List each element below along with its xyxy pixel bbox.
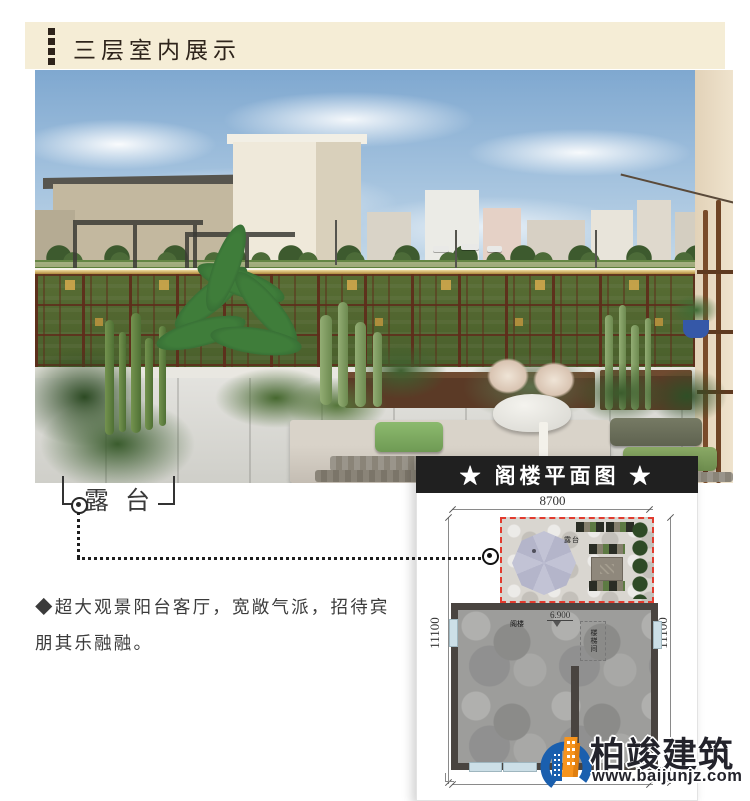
plan-bench — [589, 581, 625, 591]
trellis-bar — [703, 210, 708, 483]
leader-target-marker — [482, 548, 499, 565]
railing-gold-ornaments — [35, 280, 733, 290]
level-value: 6.900 — [547, 610, 573, 621]
plan-terrace-label: 露台 — [564, 535, 580, 545]
hanging-pot — [683, 320, 709, 338]
corner-mark — [445, 773, 454, 782]
cactus — [119, 332, 126, 432]
plan-window — [653, 621, 662, 649]
rose-flower — [487, 358, 529, 394]
brand-watermark: 柏竣建筑 www.baijunjz.com — [538, 731, 750, 799]
parked-car — [487, 246, 502, 252]
cactus — [320, 315, 332, 405]
plan-window — [503, 762, 537, 772]
cactus — [373, 332, 382, 407]
leader-line-horizontal — [77, 557, 481, 560]
level-marker: 6.900 — [547, 610, 573, 620]
dimension-line — [452, 509, 653, 510]
terrace-label: 露台 — [84, 481, 166, 517]
light-pole — [335, 220, 337, 265]
trellis-bar — [697, 270, 733, 274]
section-title: 三层室内展示 — [73, 31, 241, 65]
floorplan-title: ★ 阁楼平面图 ★ — [460, 460, 655, 490]
plan-terrace-area: 露台 — [500, 517, 654, 603]
plan-room-label: 阁楼 — [510, 619, 524, 629]
cactus — [131, 313, 141, 433]
note-line-2: 朋其乐融融。 — [35, 625, 390, 661]
flower-bowl — [493, 394, 571, 432]
leader-line-vertical — [77, 512, 80, 558]
plan-plants — [630, 521, 650, 599]
floorplan-title-bar: ★ 阁楼平面图 ★ — [416, 456, 698, 493]
parked-car — [433, 246, 449, 252]
bush — [647, 368, 727, 424]
cushion-green — [375, 422, 443, 452]
plan-window — [449, 619, 458, 647]
light-pole — [595, 230, 597, 270]
plan-table — [591, 557, 623, 581]
brand-logo-icon — [538, 731, 594, 795]
plan-window — [469, 762, 502, 772]
dimension-width: 8700 — [452, 493, 653, 509]
note-line-1: ◆超大观景阳台客厅，宽敞气派，招待宾 — [35, 589, 390, 625]
brand-website: www.baijunjz.com — [592, 767, 742, 786]
cushion-gray — [610, 418, 702, 446]
dashed-accent-bar-icon — [48, 28, 55, 67]
cactus — [145, 338, 153, 430]
parked-car — [461, 244, 479, 250]
trellis-bar — [716, 200, 721, 483]
umbrella-center — [532, 549, 536, 553]
plan-bench — [589, 544, 625, 554]
bush — [355, 343, 447, 399]
cactus — [355, 322, 366, 407]
dimension-left: 11100 — [427, 603, 443, 663]
cactus — [338, 302, 348, 407]
plan-stair-label: 楼梯间 — [588, 629, 598, 653]
fern — [40, 398, 195, 483]
light-pole — [455, 230, 457, 270]
plan-bench — [576, 522, 604, 532]
description-note: ◆超大观景阳台客厅，宽敞气派，招待宾 朋其乐融融。 — [35, 589, 390, 661]
plan-stair-box: 楼梯间 — [580, 621, 606, 661]
section-header-band: 三层室内展示 — [25, 22, 725, 69]
terrace-photo — [35, 70, 733, 483]
park-pergola — [73, 220, 203, 273]
rose-flower — [533, 362, 575, 398]
promo-page: 三层室内展示 — [0, 0, 750, 801]
cactus — [105, 320, 114, 435]
